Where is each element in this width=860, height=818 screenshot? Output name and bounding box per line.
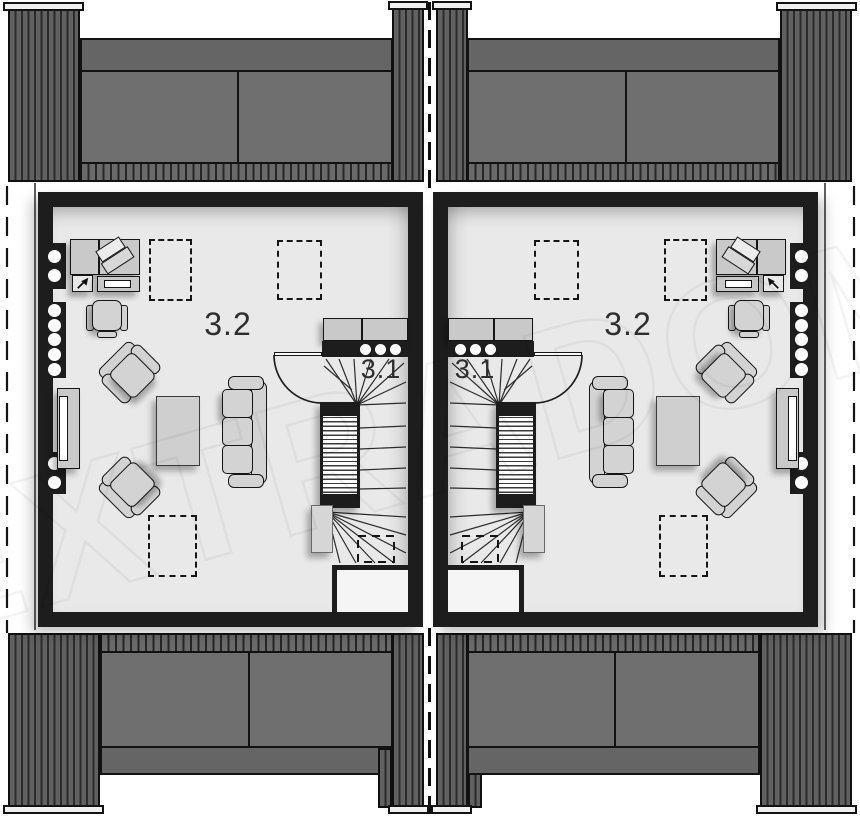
sofa-armrest-top [592, 376, 628, 390]
railing-cap-top [323, 405, 357, 416]
stair-label: 3.1 [356, 355, 406, 383]
roof-window-dashed [664, 239, 707, 301]
closet-wall-side [519, 565, 524, 612]
roof-cap-top-center-right [432, 1, 472, 10]
sofa-cushion [222, 417, 253, 446]
roof-cap-top-center-left [388, 1, 428, 10]
tv-screen [788, 396, 797, 461]
sofa-armrest-bottom [592, 474, 628, 488]
stair-railing [320, 402, 360, 508]
keyboard-tray [716, 276, 759, 292]
roof-cap-bottom-left [3, 805, 104, 814]
chair-seat [734, 300, 764, 331]
stair-railing [496, 402, 536, 508]
roof-cap-bottom-center-left [388, 805, 429, 814]
chair-seat [92, 300, 122, 331]
closet-wall-top [332, 565, 408, 570]
sofa [586, 376, 636, 490]
stair-winder-treads-lower [450, 512, 529, 563]
cursor-arrow-icon [74, 276, 92, 290]
unit-right: 3.2 3.1 [433, 192, 818, 627]
stair-label: 3.1 [450, 355, 500, 383]
chair-base [739, 331, 759, 338]
railing-cap-bottom [323, 494, 357, 505]
room-label: 3.2 [196, 309, 260, 339]
sofa-armrest-bottom [228, 474, 264, 488]
railing-cap-bottom [499, 494, 533, 505]
floorplan-screenshot: 3.2 3.1 EXTRADOM [0, 0, 860, 818]
roof-cap-bottom-right [756, 805, 857, 814]
stair-break-line [324, 366, 352, 390]
chair-base [97, 331, 117, 338]
door-swing-arc [274, 355, 322, 403]
roof-window-dashed [148, 515, 197, 577]
roof-cap-top-left [3, 2, 84, 11]
railing-cap-top [499, 405, 533, 416]
room-label: 3.2 [596, 309, 660, 339]
sofa-back [251, 381, 267, 484]
stair-winder-treads-lower [327, 512, 406, 563]
sofa-cushion [603, 445, 634, 474]
closet-wall-side [332, 565, 337, 612]
tv-screen [59, 396, 68, 461]
coffee-table [156, 396, 200, 466]
door-swing-arc [534, 355, 582, 403]
wardrobe-block [311, 505, 333, 553]
office-chair [86, 300, 128, 340]
closet-wall-top [448, 565, 524, 570]
roof-cap-bottom-center-right [431, 805, 472, 814]
cursor-arrow-icon [765, 276, 783, 290]
sofa-cushion [222, 445, 253, 474]
roof-window-dashed [534, 240, 579, 300]
roof-window-dashed [659, 515, 708, 577]
sofa [220, 376, 270, 490]
keyboard [725, 280, 752, 288]
roof-cap-top-right [776, 2, 857, 11]
roof-window-dashed [149, 239, 192, 301]
keyboard [104, 280, 131, 288]
office-chair [728, 300, 770, 340]
sofa-cushion [603, 389, 634, 418]
sofa-cushion [222, 389, 253, 418]
coffee-table [656, 396, 700, 466]
keyboard-tray [97, 276, 140, 292]
unit-left: 3.2 3.1 [38, 192, 423, 627]
sofa-cushion [603, 417, 634, 446]
stair-straight-treads [360, 426, 406, 489]
roof-window-dashed [277, 240, 322, 300]
stair-straight-treads [450, 426, 496, 489]
wardrobe-block [523, 505, 545, 553]
printer-box [72, 275, 93, 292]
printer-box [763, 275, 784, 292]
stair-break-line [504, 366, 532, 390]
sofa-armrest-top [228, 376, 264, 390]
